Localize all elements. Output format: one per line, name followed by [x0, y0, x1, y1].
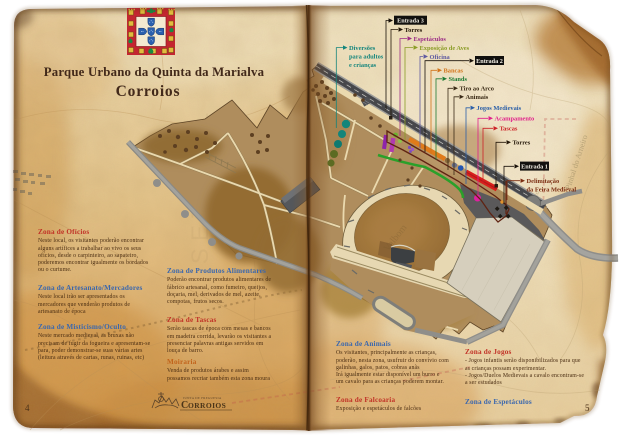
svg-text:Animais: Animais	[466, 94, 489, 101]
svg-text:4: 4	[25, 403, 30, 413]
svg-text:Diversões: Diversões	[349, 45, 376, 52]
svg-text:Stands: Stands	[449, 76, 468, 83]
svg-text:da Feira Medieval: da Feira Medieval	[527, 187, 577, 194]
svg-text:Torres: Torres	[405, 27, 423, 34]
svg-text:Parque Urbano da Quinta da Mar: Parque Urbano da Quinta da Marialva	[44, 65, 265, 79]
svg-text:Delimitação: Delimitação	[527, 178, 560, 185]
svg-text:Jogos Medievais: Jogos Medievais	[477, 105, 522, 112]
svg-text:ORROIOS: ORROIOS	[188, 401, 226, 410]
svg-text:Torres: Torres	[513, 140, 531, 147]
svg-text:Entrada 2: Entrada 2	[476, 58, 503, 65]
svg-text:Bancas: Bancas	[444, 68, 464, 75]
svg-text:e crianças: e crianças	[349, 62, 377, 69]
svg-text:Espetáculos: Espetáculos	[414, 36, 447, 43]
svg-text:Entrada 1: Entrada 1	[521, 164, 548, 171]
svg-text:Corroios: Corroios	[116, 83, 181, 100]
svg-text:Tascas: Tascas	[500, 126, 518, 133]
svg-text:Oficina: Oficina	[430, 54, 451, 61]
svg-text:Entrada 3: Entrada 3	[397, 18, 424, 25]
svg-text:para adultos: para adultos	[349, 54, 384, 61]
svg-text:JUNTA DE FREGUESIA: JUNTA DE FREGUESIA	[183, 396, 222, 400]
svg-text:Acampamento: Acampamento	[495, 116, 535, 123]
svg-text:Exposição de Aves: Exposição de Aves	[420, 45, 470, 52]
svg-text:Tiro ao Arco: Tiro ao Arco	[460, 86, 494, 93]
